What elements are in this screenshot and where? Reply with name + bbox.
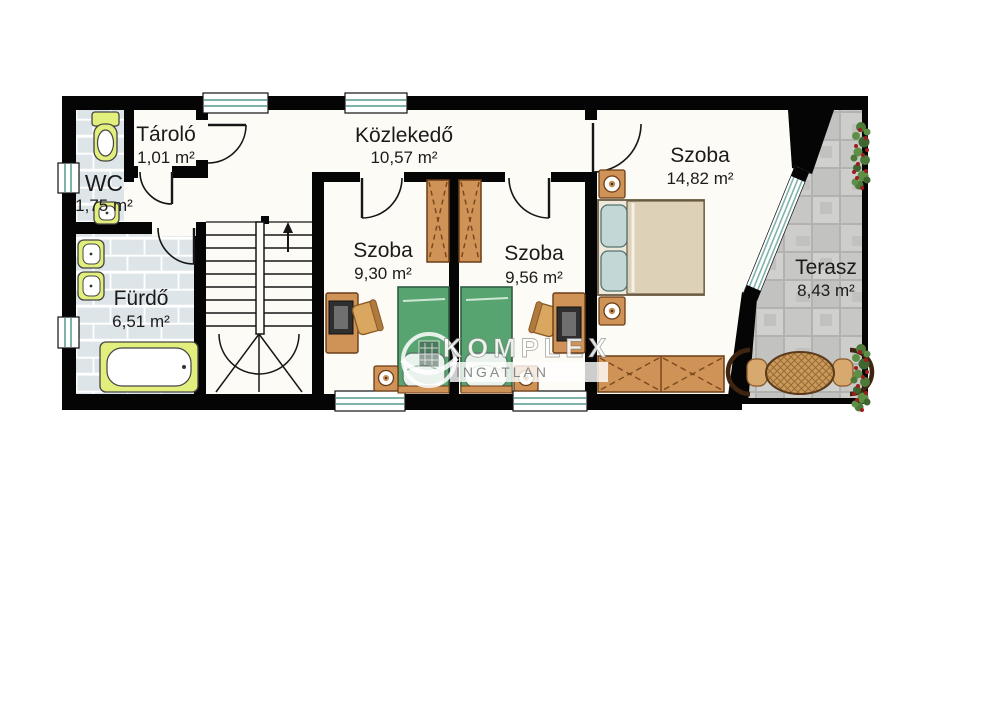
room-name-wc: WC xyxy=(85,170,123,196)
wardrobe-icon-2 xyxy=(459,180,481,262)
watermark-sub-text: INGATLAN xyxy=(456,364,549,380)
terrace-table-icon xyxy=(766,352,834,394)
pillow xyxy=(601,251,627,291)
room-name-szoba-1: Szoba xyxy=(353,239,413,262)
nightstand-icon xyxy=(374,366,398,391)
room-name-tarolo: Tároló xyxy=(136,123,196,146)
dresser-icon xyxy=(598,356,724,392)
bathtub-icon xyxy=(100,342,198,392)
single-bed-icon xyxy=(398,287,449,393)
double-bed-icon xyxy=(598,200,704,295)
window-left-wc xyxy=(58,163,79,193)
room-area-kozlekedo: 10,57 m² xyxy=(370,148,437,167)
desk-icon xyxy=(326,293,358,353)
wardrobe-icon xyxy=(427,180,449,262)
wall-left xyxy=(62,96,76,410)
room-area-furdo: 6,51 m² xyxy=(112,312,170,331)
room-area-wc: 1,75 m² xyxy=(75,196,133,215)
nightstand-icon-3 xyxy=(599,170,625,198)
room-area-szoba-2: 9,56 m² xyxy=(505,268,563,287)
watermark-brand-text: KOMPLEX xyxy=(443,333,612,363)
room-name-kozlekedo: Közlekedő xyxy=(355,124,453,147)
bathroom-sink-icon xyxy=(78,240,104,268)
room-area-tarolo: 1,01 m² xyxy=(137,148,195,167)
room-name-terasz: Terasz xyxy=(795,256,857,279)
room-area-terasz: 8,43 m² xyxy=(797,281,855,300)
nightstand-icon-4 xyxy=(599,297,625,325)
floor-plan-canvas: Tároló 1,01 m² WC 1,75 m² Fürdő 6,51 m² … xyxy=(0,0,1000,706)
toilet-icon xyxy=(92,112,119,161)
room-name-szoba-3: Szoba xyxy=(670,144,730,167)
window-top-hall xyxy=(203,93,268,113)
terrace-border-bottom xyxy=(742,398,868,404)
window-bottom-szoba-2 xyxy=(513,391,587,411)
window-top-kozlekedo xyxy=(345,93,407,113)
floor-plan: Tároló 1,01 m² WC 1,75 m² Fürdő 6,51 m² … xyxy=(0,0,1000,706)
window-left-bathroom xyxy=(58,317,79,348)
room-area-szoba-1: 9,30 m² xyxy=(354,264,412,283)
room-name-szoba-2: Szoba xyxy=(504,242,564,265)
room-area-szoba-3: 14,82 m² xyxy=(666,169,733,188)
window-bottom-szoba-1 xyxy=(335,391,405,411)
wall-top xyxy=(62,96,868,110)
room-name-furdo: Fürdő xyxy=(114,287,169,310)
pillow xyxy=(601,205,627,247)
bathroom-sink-icon-2 xyxy=(78,272,104,300)
